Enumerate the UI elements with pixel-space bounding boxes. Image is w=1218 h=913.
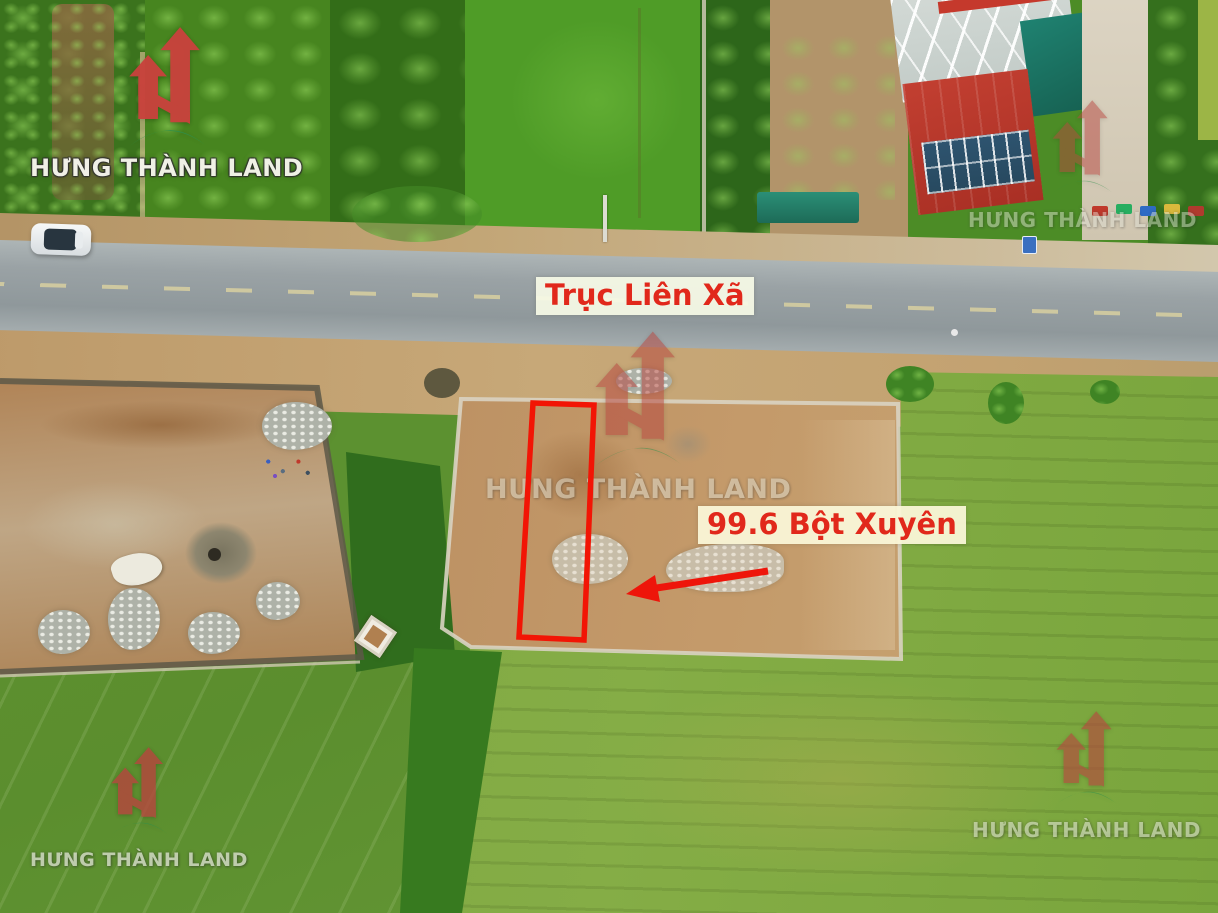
plot-area-label: 99.6 Bột Xuyên (698, 506, 966, 544)
plot-pointer-arrow-shaft (650, 571, 768, 589)
plot-outline (519, 403, 594, 640)
aerial-drone-photo: HƯNG THÀNH LAND HƯNG THÀNH LAND HƯNG THÀ… (0, 0, 1218, 913)
annotation-layer (0, 0, 1218, 913)
road-name-label: Trục Liên Xã (536, 277, 754, 315)
plot-pointer-arrowhead (626, 575, 660, 602)
